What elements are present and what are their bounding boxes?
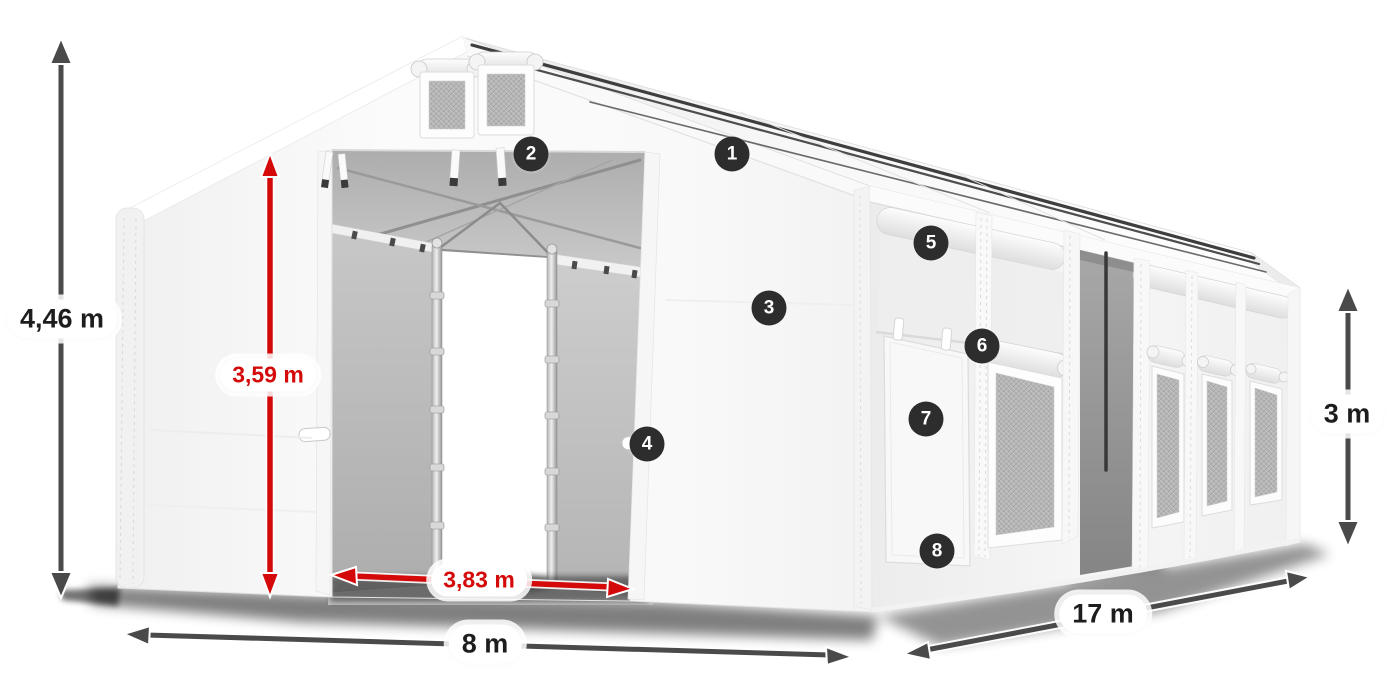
entrance-interior (328, 145, 653, 605)
vent-window-left (420, 72, 474, 138)
rear-post (1234, 282, 1246, 553)
rear-window (1202, 374, 1232, 516)
vent-window-right (478, 65, 534, 135)
corner-pad-left (116, 208, 144, 588)
front-width-label: 8 m (449, 625, 522, 664)
callout-badge-2: 2 (514, 137, 549, 172)
tent-illustration (0, 0, 1400, 700)
door-leaf-left (331, 224, 437, 592)
total-height-label: 4,46 m (7, 300, 117, 339)
seam-band (1062, 230, 1080, 544)
callout-badge-5: 5 (914, 226, 949, 261)
frame-pole-left (430, 238, 444, 586)
rear-post (1184, 270, 1198, 562)
side-wall-height-label: 3 m (1311, 395, 1384, 434)
callout-badge-1: 1 (715, 137, 750, 172)
door-jamb-left (316, 150, 332, 595)
callout-badge-6: 6 (965, 329, 1000, 364)
corner-pad-rear (1286, 288, 1300, 546)
corner-pad-right (854, 186, 872, 610)
frame-pole-right (545, 244, 559, 586)
callout-badge-8: 8 (920, 534, 955, 569)
callout-badge-3: 3 (752, 291, 787, 326)
door-handle-left (299, 427, 331, 442)
rear-post (1132, 258, 1150, 572)
entrance-width-label: 3,83 m (431, 564, 527, 597)
rear-window (1152, 366, 1184, 528)
side-length-label: 17 m (1059, 595, 1147, 634)
side-window (988, 362, 1062, 548)
open-side-doorway (1080, 250, 1134, 575)
side-door-panel (884, 318, 970, 566)
callout-badge-7: 7 (909, 402, 944, 437)
rear-window (1250, 381, 1282, 505)
open-passage (441, 251, 549, 586)
callout-badge-4: 4 (630, 427, 665, 462)
entrance-height-label: 3,59 m (220, 359, 316, 392)
tent-dimension-diagram: 4,46 m 3,59 m 3,83 m 8 m 17 m 3 m 1 2 3 … (0, 0, 1400, 700)
